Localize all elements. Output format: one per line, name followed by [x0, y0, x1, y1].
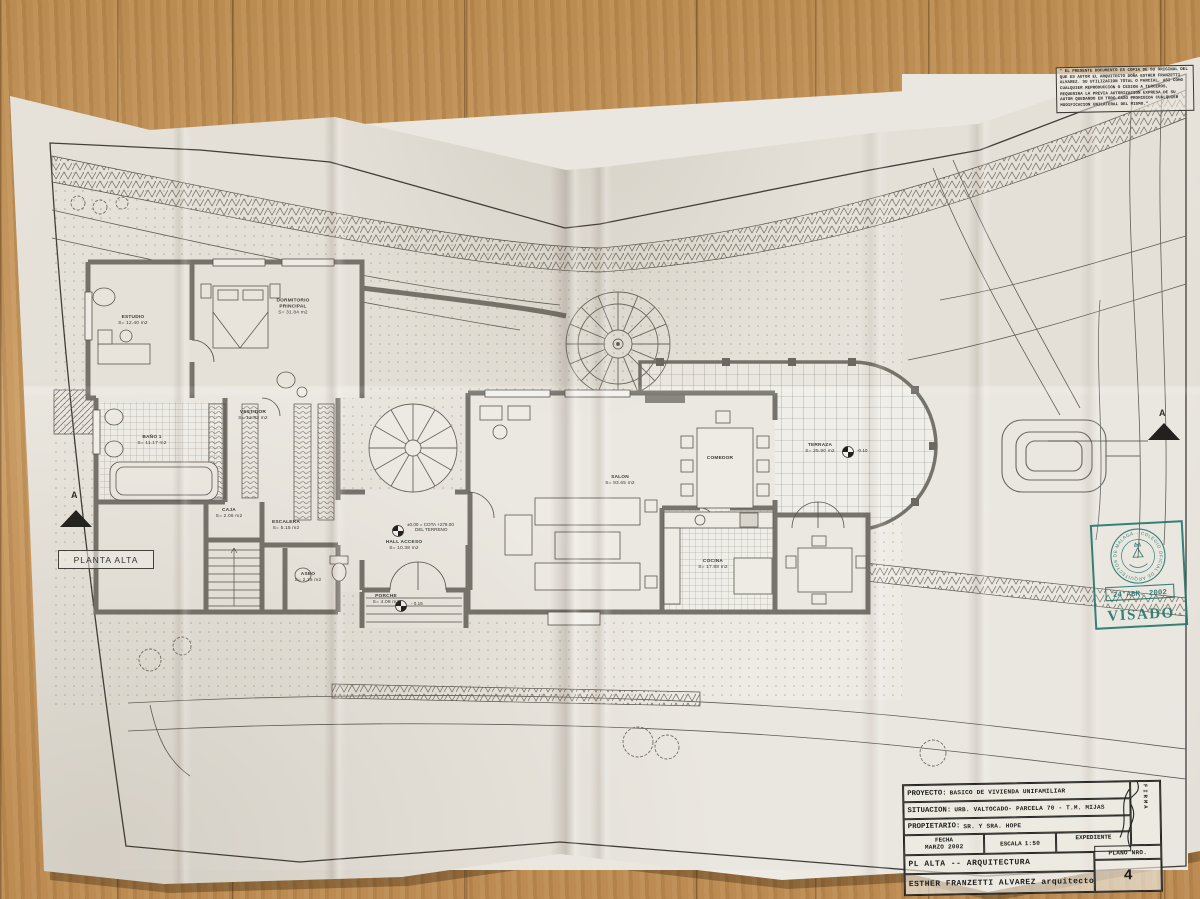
field-plano-nro: 4: [1094, 859, 1162, 892]
field-escala: ESCALA 1:50: [984, 833, 1056, 854]
room-area: S= 2.15 m2: [295, 578, 322, 584]
room-area: S= 31.84 m2: [269, 311, 317, 317]
room-label-vestidor: VESTIDOR S= 12.83 m2: [238, 410, 268, 422]
escala-label: ESCALA: [1000, 840, 1022, 847]
field-fecha: FECHA MARZO 2002: [904, 834, 984, 855]
room-area: S= 12.83 m2: [238, 416, 268, 422]
stamp-crest-icon: [1133, 548, 1143, 558]
room-area: S= 4.08 m2: [373, 600, 400, 606]
proyecto-value: BASICO DE VIVIENDA UNIFAMILIAR: [950, 787, 1066, 796]
stamp-graphic: · COLEGIO OFICIAL DE ARQUITECTOS DE MALA…: [1089, 520, 1188, 631]
cota-line2: DEL TERRENO: [415, 527, 454, 532]
field-autor: ESTHER FRANZETTI ALVAREZ arquitecto: [905, 871, 1095, 895]
room-name: DORMITORIO PRINCIPAL: [269, 299, 317, 311]
room-name: COMEDOR: [707, 456, 733, 462]
fecha-value: MARZO 2002: [925, 843, 964, 851]
plano-title: PL ALTA -- ARQUITECTURA: [908, 858, 1030, 869]
room-area: S= 25.90 m2: [805, 449, 835, 455]
room-area: S= 12.40 m2: [118, 321, 148, 327]
cota-annotation: ±0.00 = COTA +278.00 DEL TERRENO: [407, 522, 454, 532]
room-label-dormitorio: DORMITORIO PRINCIPAL S= 31.84 m2: [269, 299, 317, 318]
escala-value: 1:50: [1025, 839, 1041, 846]
room-label-porche: PORCHE S= 4.08 m2: [373, 594, 400, 606]
section-letter-right: A: [1159, 408, 1166, 418]
floor-plan-drawing: [0, 0, 1200, 899]
section-letter-left: A: [71, 490, 78, 500]
room-label-estudio: ESTUDIO S= 12.40 m2: [118, 315, 148, 327]
title-block: PROYECTO: BASICO DE VIVIENDA UNIFAMILIAR…: [902, 780, 1163, 897]
room-area: S= 11.17 m2: [137, 441, 166, 447]
field-plano-nro-label: PLANO NRO.: [1094, 845, 1161, 860]
expediente-label: EXPEDIENTE: [1075, 834, 1111, 842]
room-label-terraza: TERRAZA S= 25.90 m2: [805, 443, 835, 455]
level-terraza: -0.10: [857, 448, 867, 453]
room-area: S= 10.38 m2: [386, 546, 423, 552]
room-label-comedor: COMEDOR: [707, 456, 733, 462]
room-label-caja: CAJA S= 2.06 m2: [216, 508, 243, 520]
room-label-hall: HALL ACCESO S= 10.38 m2: [386, 540, 423, 552]
plan-title-box: PLANTA ALTA: [58, 550, 154, 569]
room-label-cocina: COCINA S= 17.88 m2: [698, 559, 728, 571]
room-label-aseo: ASEO S= 2.15 m2: [295, 572, 322, 584]
proyecto-label: PROYECTO:: [907, 789, 947, 798]
plano-nro-value: 4: [1124, 867, 1133, 884]
room-label-salon: SALON S= 93.65 m2: [605, 475, 635, 487]
room-area: S= 5.15 m2: [272, 526, 300, 532]
propietario-value: SR. Y SRA. HOPE: [963, 822, 1021, 830]
copyright-disclaimer: " EL PRESENTE DOCUMENTO ES COPIA DE SU O…: [1056, 65, 1195, 113]
room-area: S= 2.06 m2: [216, 514, 243, 520]
visado-stamp: · COLEGIO OFICIAL DE ARQUITECTOS DE MALA…: [1089, 520, 1188, 631]
level-porche: - 0.15: [411, 601, 423, 606]
firma-label: FIRMA: [1142, 784, 1149, 811]
plano-nro-label: PLANO NRO.: [1108, 849, 1147, 857]
propietario-label: PROPIETARIO:: [908, 822, 961, 831]
room-label-escalera: ESCALERA S= 5.15 m2: [272, 520, 300, 532]
autor-value: ESTHER FRANZETTI ALVAREZ arquitecto: [909, 877, 1095, 889]
room-label-bano: BAÑO 1 S= 11.17 m2: [137, 435, 166, 447]
field-firma: FIRMA: [1130, 781, 1161, 846]
circular-ramp: [369, 404, 457, 492]
photo-of-floor-plan: PLANTA ALTA ESTUDIO S= 12.40 m2 DORMITOR…: [0, 0, 1200, 899]
situacion-value: URB. VALTOCADO- PARCELA 70 - T.M. MIJAS: [954, 804, 1105, 814]
room-area: S= 17.88 m2: [698, 565, 728, 571]
situacion-label: SITUACION:: [907, 806, 951, 815]
disclaimer-text: " EL PRESENTE DOCUMENTO ES COPIA DE SU O…: [1060, 68, 1188, 108]
room-area: S= 93.65 m2: [605, 481, 635, 487]
plan-title: PLANTA ALTA: [74, 555, 139, 565]
stamp-label: VISADO: [1107, 605, 1175, 625]
